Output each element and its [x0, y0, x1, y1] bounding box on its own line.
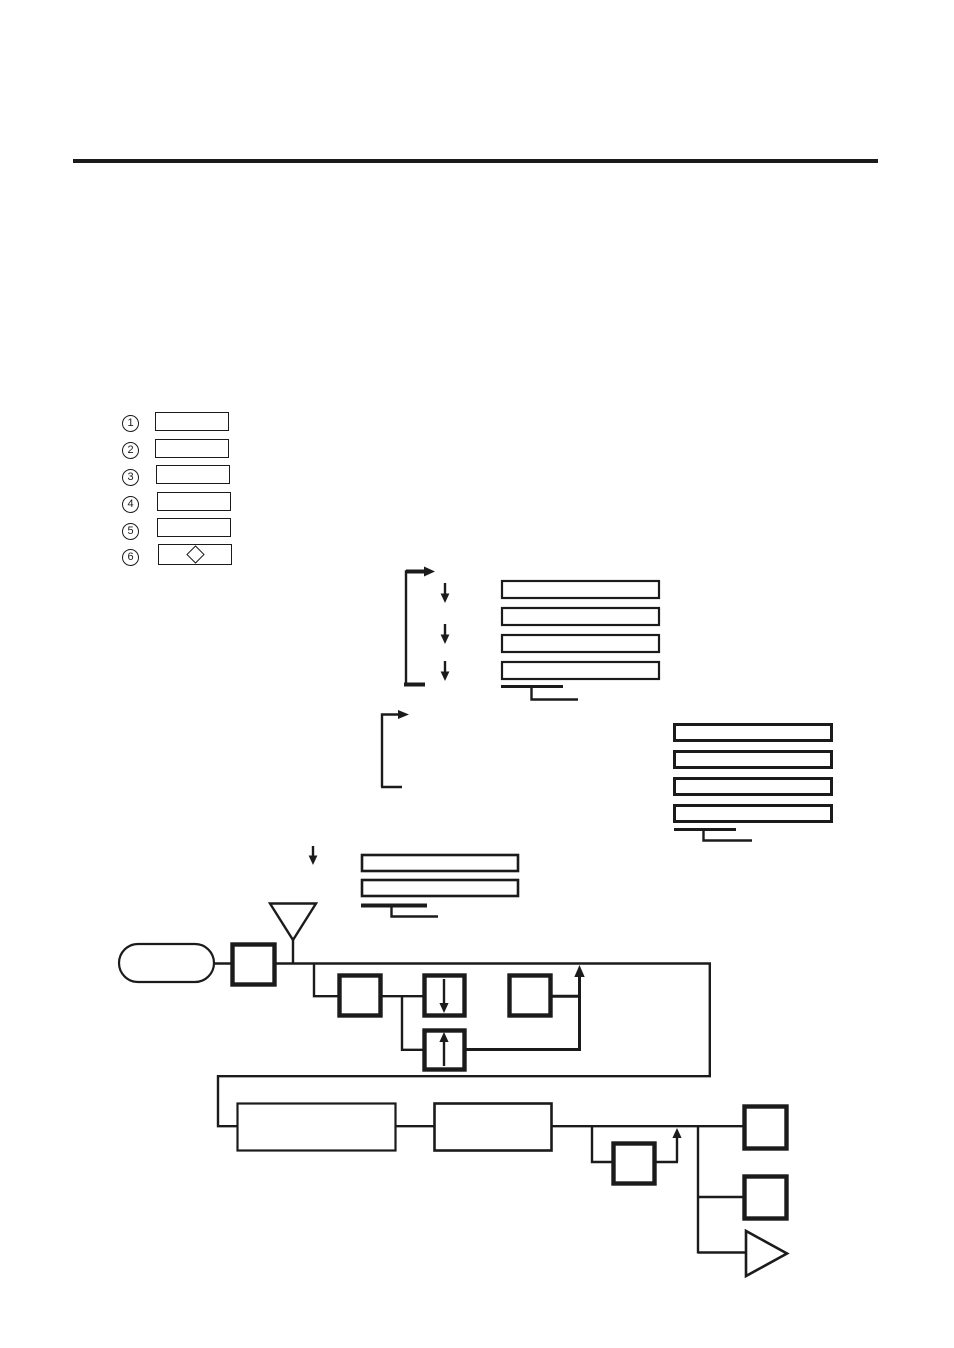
branch-connector	[592, 1126, 613, 1162]
arrow-right-icon	[398, 710, 409, 719]
blank-step-box	[502, 635, 659, 652]
blank-step-box	[502, 581, 659, 598]
output-block	[745, 1177, 787, 1219]
wide-process-block	[238, 1104, 396, 1151]
step-connector	[674, 830, 752, 841]
arrow-up-icon	[574, 965, 584, 977]
output-block	[745, 1107, 787, 1149]
down-arrow-icon	[441, 624, 450, 644]
blank-step-box	[675, 779, 832, 795]
blank-step-box	[675, 806, 832, 822]
loop-bracket-upper	[404, 567, 435, 686]
down-arrow-icon	[309, 846, 318, 865]
branch-connector	[402, 996, 424, 1050]
source-capsule	[119, 944, 214, 982]
blank-step-box	[502, 608, 659, 625]
loop-bracket-lower	[381, 710, 409, 787]
wide-process-block	[435, 1104, 552, 1151]
blank-step-box	[675, 725, 832, 741]
process-block	[510, 976, 551, 1016]
arrow-right-icon	[424, 567, 435, 577]
scanned-manual-page: 1 2 3 4 5 6	[0, 0, 954, 1348]
arrow-up-icon	[672, 1128, 681, 1138]
branch-connector	[314, 964, 339, 997]
down-arrow-icon	[441, 661, 450, 681]
process-block	[340, 976, 381, 1016]
blank-step-box	[362, 880, 518, 896]
blank-step-box	[502, 662, 659, 679]
blank-step-box	[675, 752, 832, 768]
blank-step-box	[362, 855, 518, 871]
antenna-icon	[270, 904, 316, 965]
down-arrow-icon	[441, 583, 450, 603]
step-connector	[361, 906, 438, 917]
process-block	[614, 1144, 655, 1184]
speaker-triangle-icon	[746, 1231, 787, 1276]
tuner-block	[233, 945, 275, 985]
step-connector	[501, 687, 578, 700]
flow-diagram	[0, 0, 954, 1348]
